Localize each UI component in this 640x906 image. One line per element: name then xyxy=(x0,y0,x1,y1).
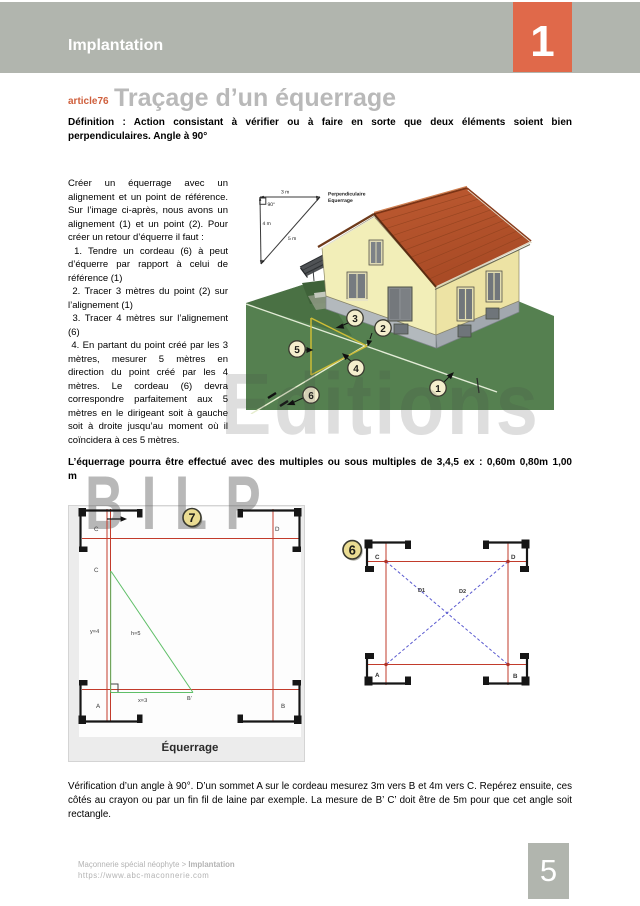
svg-text:90°: 90° xyxy=(268,202,276,208)
svg-text:C: C xyxy=(94,567,99,574)
svg-text:B: B xyxy=(281,703,285,710)
svg-text:C: C xyxy=(94,526,99,533)
svg-text:2: 2 xyxy=(380,324,386,335)
svg-text:A: A xyxy=(375,672,380,679)
svg-text:A: A xyxy=(96,703,101,710)
svg-text:4 m: 4 m xyxy=(263,221,271,227)
svg-text:D: D xyxy=(511,554,516,561)
svg-text:5 m: 5 m xyxy=(288,236,296,242)
svg-text:h=5: h=5 xyxy=(131,630,141,637)
svg-text:B: B xyxy=(513,673,518,680)
svg-text:3 m: 3 m xyxy=(281,190,289,196)
svg-text:3: 3 xyxy=(352,314,358,325)
svg-text:y=4: y=4 xyxy=(90,629,99,635)
svg-text:x=3: x=3 xyxy=(138,698,147,704)
svg-text:Equerrage: Equerrage xyxy=(328,198,353,204)
svg-text:D1: D1 xyxy=(418,588,425,594)
svg-text:D2: D2 xyxy=(459,589,466,595)
svg-text:D: D xyxy=(275,526,280,533)
svg-text:C: C xyxy=(375,554,380,561)
svg-text:7: 7 xyxy=(189,511,196,525)
svg-text:Perpendiculaire: Perpendiculaire xyxy=(328,192,366,198)
svg-text:B’: B’ xyxy=(187,696,192,702)
svg-text:6: 6 xyxy=(349,543,356,558)
svg-text:Équerrage: Équerrage xyxy=(162,740,219,754)
